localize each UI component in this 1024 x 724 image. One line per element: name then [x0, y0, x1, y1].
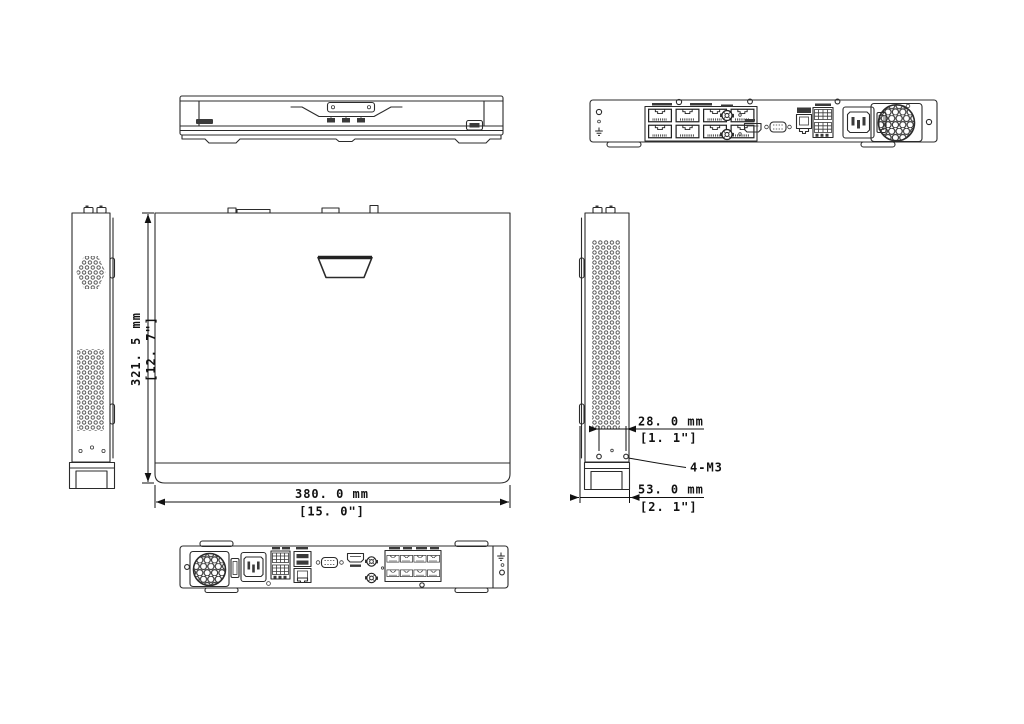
rear-protrusion [322, 208, 339, 213]
led-icon [342, 118, 350, 123]
rear-foot [861, 142, 895, 147]
led-icon [357, 118, 365, 123]
rj45-port [400, 555, 412, 562]
rear-protrusion [228, 208, 236, 213]
vent-holes-grid [592, 240, 620, 430]
dimensional-drawing-page: 321. 5 mm [12. 7"] 380. 0 mm [15. 0"] 28… [0, 0, 1024, 724]
rear-foot [205, 588, 238, 593]
hdmi-port [348, 554, 364, 567]
port-label-marks [745, 119, 755, 121]
drawing-svg: 321. 5 mm [12. 7"] 380. 0 mm [15. 0"] 28… [0, 0, 1024, 724]
usb-lan-stack [294, 547, 311, 583]
rj45-port [649, 109, 672, 122]
side-foot [84, 208, 93, 214]
port-label-marks [389, 547, 400, 549]
dimension-label: [15. 0"] [299, 505, 365, 519]
audio-bnc-connectors [365, 557, 384, 583]
left-side-view [70, 206, 115, 489]
front-feet [182, 135, 501, 143]
vent-holes-grid [77, 349, 104, 431]
poe-rj45-ports-8x [385, 547, 441, 587]
dimension-width: 380. 0 mm [15. 0"] [155, 485, 510, 519]
vga-port [765, 122, 792, 132]
top-view [155, 206, 510, 484]
rj45-port [414, 555, 426, 562]
dimension-depth: 321. 5 mm [12. 7"] [129, 213, 158, 483]
fan-grille [190, 552, 229, 587]
screw-icon [926, 119, 931, 124]
port-label-marks [652, 103, 672, 106]
vga-port [316, 558, 343, 568]
screw-icon [906, 104, 910, 108]
extension-lines [580, 426, 630, 503]
port-label-marks [797, 108, 811, 114]
usb-port [297, 561, 309, 565]
ground-terminal-icon [595, 128, 603, 136]
mount-screw-hole [624, 454, 629, 459]
side-bracket-inner [76, 471, 107, 489]
port-label-marks [721, 105, 733, 107]
rear-foot [455, 588, 488, 593]
rj45-port [676, 109, 699, 122]
hinge-tab [110, 404, 115, 424]
dimension-label: 380. 0 mm [295, 487, 369, 501]
screw-callout: 4-M3 [629, 458, 723, 475]
screw-icon [420, 583, 424, 587]
vga-screw-icon [340, 561, 344, 565]
rj45-port [427, 570, 439, 577]
right-side-view [580, 206, 630, 490]
vga-screw-icon [316, 561, 320, 565]
fan-grille [871, 104, 922, 142]
port-label-marks [282, 547, 290, 549]
top-outline [155, 213, 510, 483]
dimension-label: [12. 7"] [144, 316, 158, 382]
alarm-terminal-block [271, 547, 290, 579]
dimension-label: 53. 0 mm [638, 483, 704, 497]
front-end-caps [199, 101, 484, 126]
mount-screw-hole [597, 454, 602, 459]
rj45-port [387, 555, 399, 562]
ground-terminal-icon [497, 553, 505, 561]
ac-inlet-c14 [241, 553, 266, 582]
usb-port-inner [470, 123, 480, 128]
screw-icon [598, 120, 601, 123]
rj45-port [676, 125, 699, 138]
mount-hole [102, 449, 105, 452]
front-chassis [180, 96, 503, 135]
rj45-port [387, 570, 399, 577]
poe-rj45-ports-8x [645, 99, 757, 141]
mount-hole [79, 449, 82, 452]
front-bottom-seams [180, 126, 503, 131]
alarm-terminal-block [813, 99, 840, 137]
lan-rj45-port [294, 569, 311, 583]
rear-view [590, 99, 937, 147]
screw-icon [596, 109, 601, 114]
rj45-port [400, 570, 412, 577]
lan-rj45-port [797, 108, 812, 134]
front-view [180, 96, 503, 143]
hinge-tab [110, 258, 115, 278]
screw-icon [500, 570, 505, 575]
rear-protrusion [370, 206, 378, 214]
mount-hole [611, 449, 614, 452]
top-recess-trapezoid [318, 258, 372, 278]
vent-holes-hex [77, 256, 106, 289]
rj45-port [649, 125, 672, 138]
port-label-marks [416, 547, 427, 549]
port-label-marks [272, 547, 280, 549]
dimension-label: [2. 1"] [640, 500, 698, 514]
dimension-label: 321. 5 mm [129, 312, 143, 386]
side-bracket-inner [591, 472, 622, 490]
leader-line [629, 458, 687, 468]
led-icon [327, 118, 335, 123]
vga-screw-icon [788, 125, 792, 129]
plate-screw-icon [367, 106, 370, 109]
ac-inlet-c14 [843, 107, 874, 138]
screw-icon [501, 564, 504, 567]
bnc-connector-icon [365, 573, 378, 582]
plate-screw-icon [331, 106, 334, 109]
brand-logo [196, 119, 213, 124]
callout-label: 4-M3 [690, 461, 723, 475]
screw-icon [267, 582, 271, 586]
mount-hole [90, 446, 93, 449]
bottom-rear-view [180, 541, 508, 593]
bnc-connector-icon [365, 557, 378, 566]
rj45-port [414, 570, 426, 577]
power-switch [231, 559, 239, 578]
port-label-marks [350, 565, 361, 567]
side-foot [606, 208, 615, 214]
dimension-label: [1. 1"] [640, 431, 698, 445]
vga-screw-icon [765, 125, 769, 129]
usb-port [297, 554, 309, 558]
status-leds [327, 117, 365, 123]
screw-icon [185, 565, 190, 570]
rj45-port [427, 555, 439, 562]
port-label-marks [690, 103, 712, 106]
port-label-marks [430, 547, 439, 549]
rear-foot [607, 142, 641, 147]
dimension-label: 28. 0 mm [638, 415, 704, 429]
port-label-marks [815, 104, 831, 107]
port-label-marks [403, 547, 412, 549]
side-foot [97, 208, 106, 214]
port-label-marks [296, 547, 308, 549]
side-foot [593, 208, 602, 214]
